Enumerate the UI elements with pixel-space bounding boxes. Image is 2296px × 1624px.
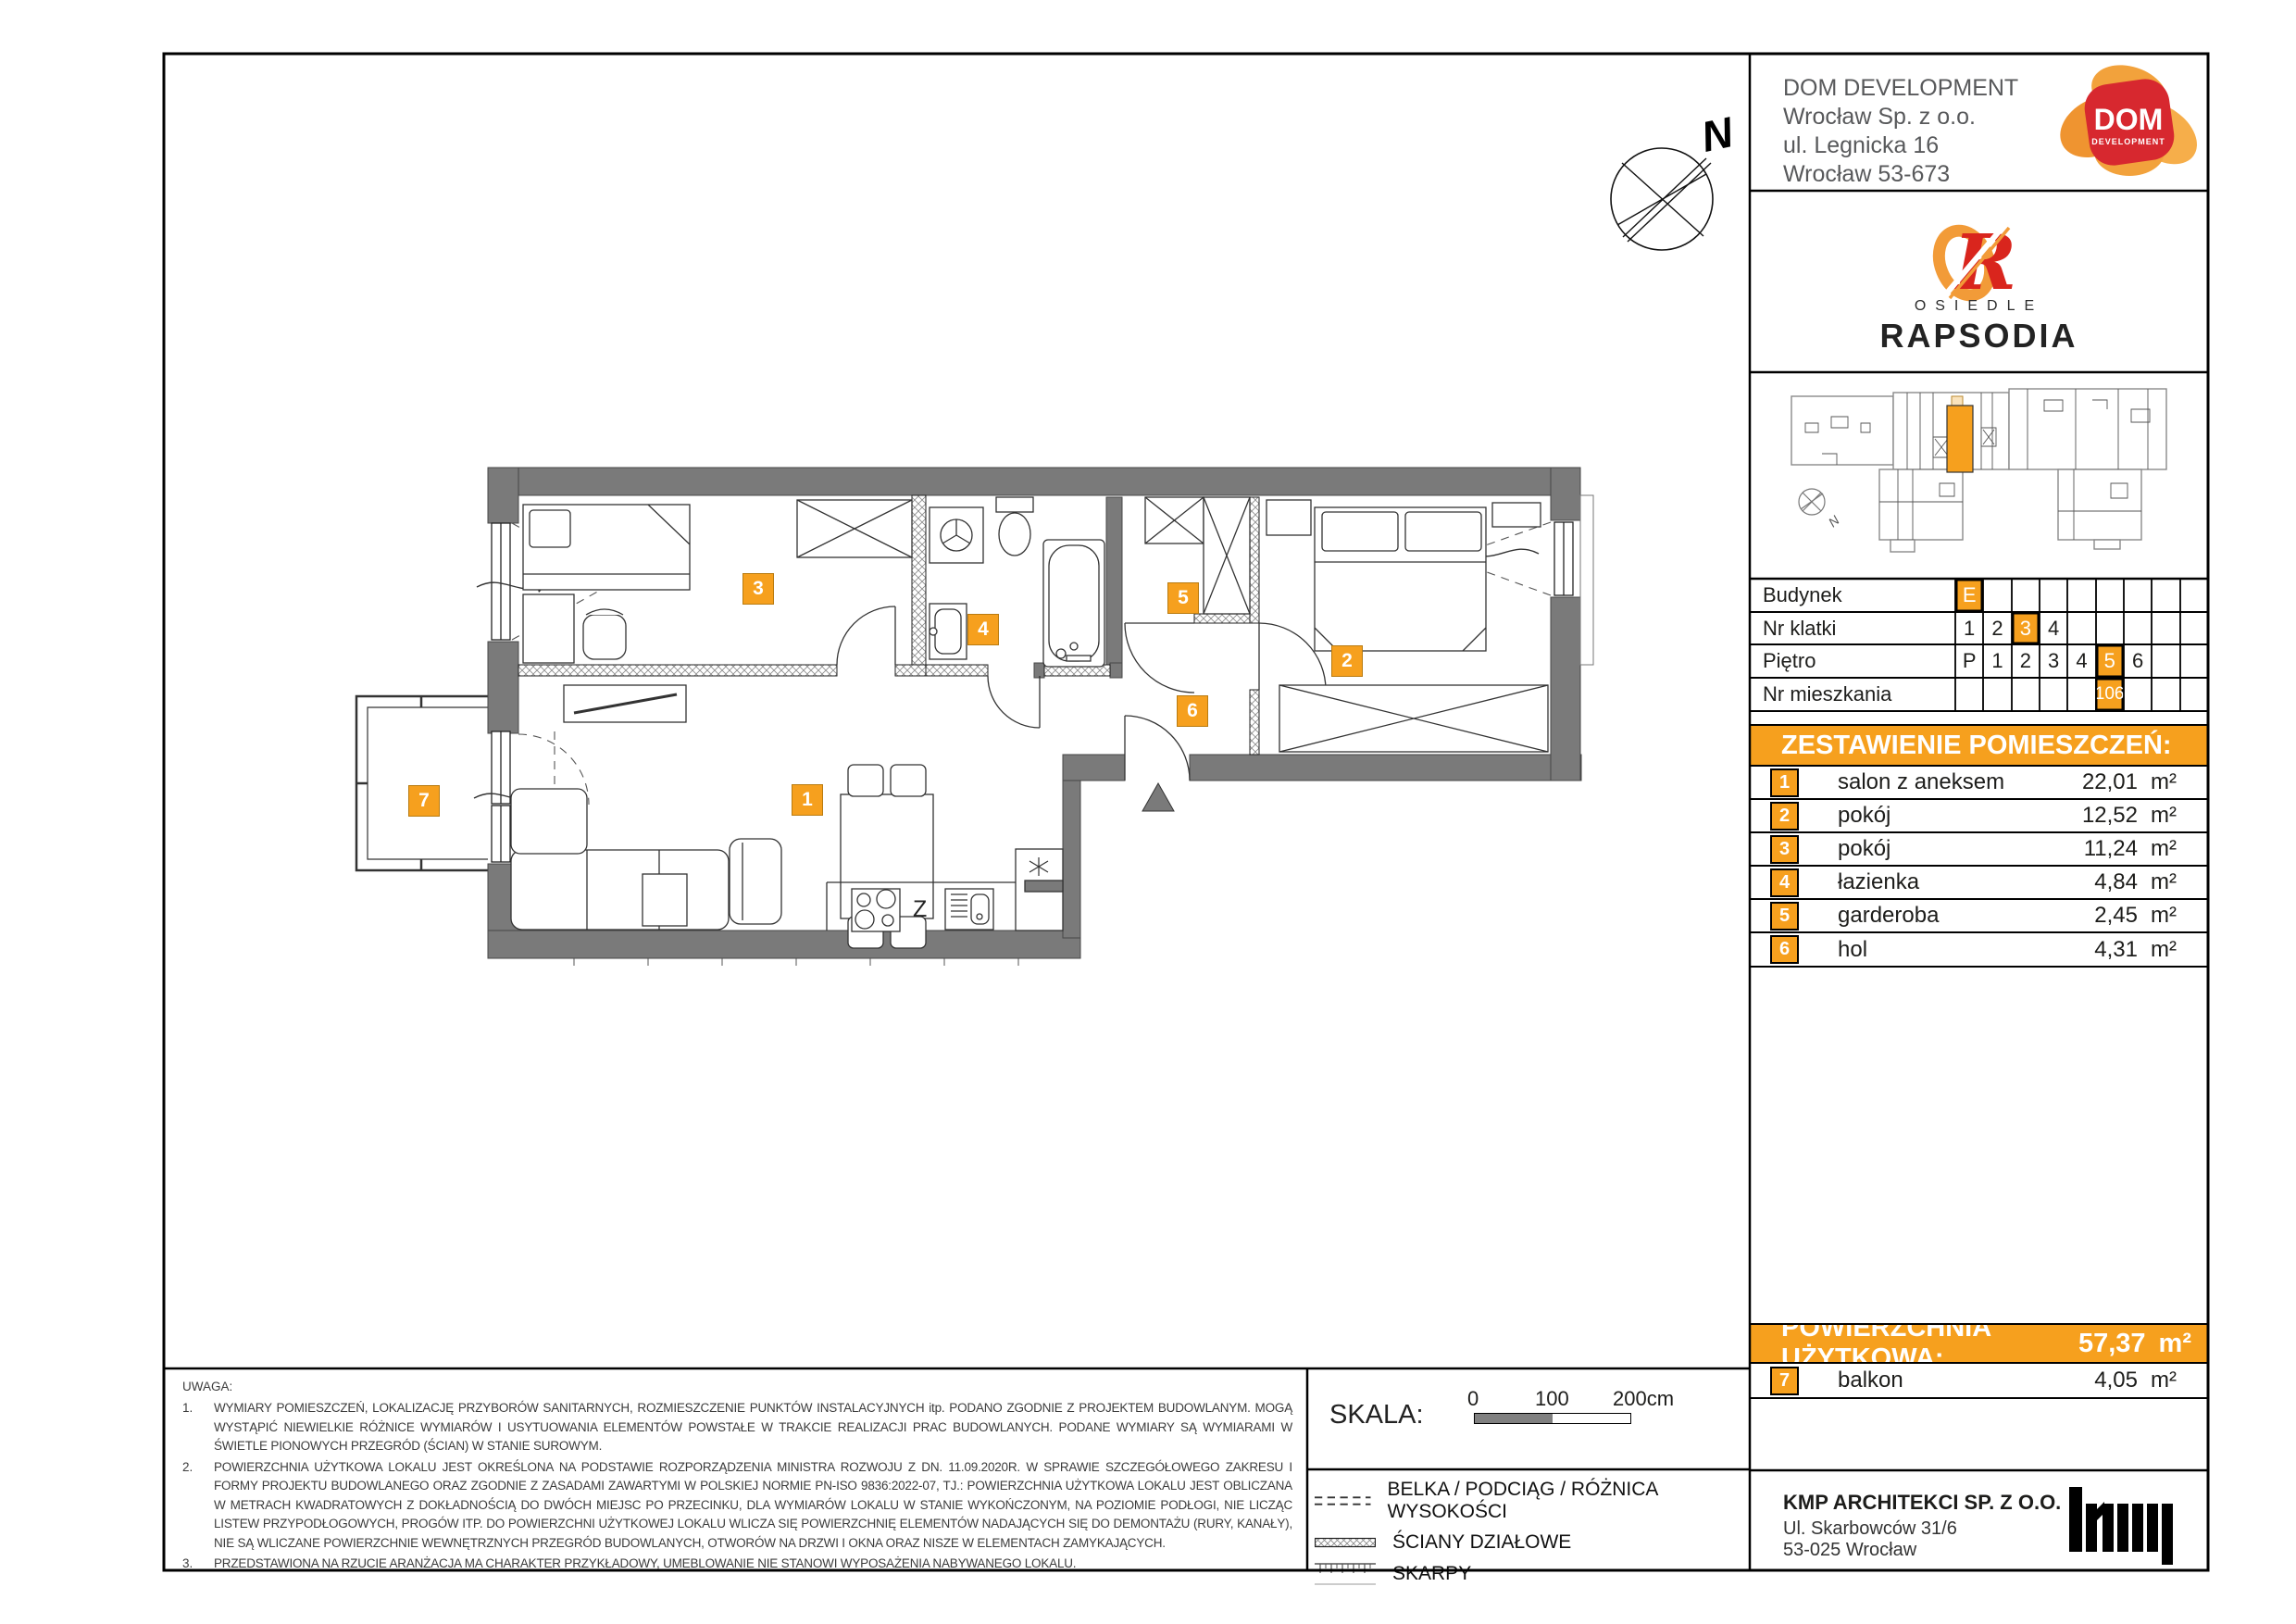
room-badge-1: 1 <box>792 784 823 816</box>
row-label: Nr klatki <box>1750 612 1955 644</box>
room-row-badge: 3 <box>1770 835 1799 864</box>
building-overview-panel: N <box>1750 372 2208 579</box>
rapsodia-logo-icon: R <box>1916 219 2046 302</box>
room-badge-2: 2 <box>1331 645 1363 677</box>
balcony-outline <box>356 696 488 870</box>
note-1: 1. WYMIARY POMIESZCZEŃ, LOKALIZACJĘ PRZY… <box>182 1399 1292 1456</box>
total-area-band: POWIERZCHNIA UŻYTKOWA: 57,37 m² <box>1750 1324 2208 1363</box>
legend-sciany: ŚCIANY DZIAŁOWE <box>1315 1531 1750 1554</box>
row-label: Budynek <box>1750 579 1955 612</box>
scale-tick-200: 200cm <box>1613 1387 1674 1411</box>
room-row-2: 2 pokój 12,52 m² <box>1750 799 2208 832</box>
highlighted-unit <box>1947 406 1973 472</box>
row-label: Piętro <box>1750 644 1955 678</box>
wall-outer-strip <box>1580 495 1593 665</box>
company-line3: ul. Legnicka 16 <box>1783 131 2018 160</box>
floorplan-sheet: { "company": { "name": "DOM DEVELOPMENT"… <box>0 0 2296 1624</box>
beam-symbol-icon <box>1315 1493 1371 1508</box>
room-row-badge: 6 <box>1770 935 1799 964</box>
cell-pietro-5: 5 <box>2096 644 2124 678</box>
slope-symbol-icon <box>1315 1562 1376 1586</box>
cell-klatka-3: 3 <box>2012 612 2040 644</box>
building-overview-map: N <box>1750 372 2208 579</box>
room-badge-7: 7 <box>408 785 440 817</box>
company-line2: Wrocław Sp. z o.o. <box>1783 103 2018 131</box>
estate-line2: RAPSODIA <box>1750 317 2208 356</box>
room-row-badge: 5 <box>1770 902 1799 931</box>
legend-skarpy: SKARPY <box>1315 1562 1750 1586</box>
room-badge-3: 3 <box>742 573 774 605</box>
cell-budynek-e: E <box>1955 579 1983 612</box>
table-row-pietro: Piętro P 1 2 3 4 5 6 <box>1750 644 2208 678</box>
estate-line1: OSIEDLE <box>1750 298 2208 315</box>
dom-development-logo-icon: DOM DEVELOPMENT <box>2055 57 2203 187</box>
kmp-logo-icon <box>2065 1478 2180 1566</box>
company-panel: DOM DEVELOPMENT Wrocław Sp. z o.o. ul. L… <box>1750 54 2208 191</box>
svg-text:DEVELOPMENT: DEVELOPMENT <box>2091 137 2165 146</box>
company-line4: Wrocław 53-673 <box>1783 160 2018 189</box>
room-badge-4: 4 <box>967 614 999 645</box>
mini-compass-icon <box>1799 489 1825 515</box>
legend-belka: BELKA / PODCIĄG / RÓŻNICA WYSOKOŚCI <box>1315 1479 1750 1523</box>
room-badge-6: 6 <box>1177 695 1208 727</box>
room-row-badge: 7 <box>1770 1367 1799 1395</box>
room-row-1: 1 salon z aneksem 22,01 m² <box>1750 766 2208 799</box>
room-row-badge: 2 <box>1770 802 1799 831</box>
notes-panel: UWAGA: 1. WYMIARY POMIESZCZEŃ, LOKALIZAC… <box>164 1368 1307 1570</box>
room-row-3: 3 pokój 11,24 m² <box>1750 832 2208 866</box>
table-row-budynek: Budynek E <box>1750 579 2208 612</box>
total-value: 57,37 <box>2078 1329 2146 1359</box>
legend-panel: BELKA / PODCIĄG / RÓŻNICA WYSOKOŚCI ŚCIA… <box>1307 1469 1750 1570</box>
architect-line2: Ul. Skarbowców 31/6 <box>1783 1518 2061 1540</box>
scale-bar <box>1474 1413 1631 1424</box>
room-row-balkon: 7 balkon 4,05 m² <box>1750 1363 2208 1398</box>
estate-panel: R OSIEDLE RAPSODIA <box>1750 191 2208 372</box>
note-2: 2. POWIERZCHNIA UŻYTKOWA LOKALU JEST OKR… <box>182 1458 1292 1554</box>
table-row-mieszkanie: Nr mieszkania 106 <box>1750 678 2208 711</box>
cell-mieszkanie-106: 106 <box>2095 678 2125 711</box>
room-row-5: 5 garderoba 2,45 m² <box>1750 899 2208 932</box>
svg-text:DOM: DOM <box>2094 103 2164 136</box>
rooms-header-label: ZESTAWIENIE POMIESZCZEŃ: <box>1781 731 2172 761</box>
total-unit: m² <box>2159 1329 2191 1359</box>
company-name: DOM DEVELOPMENT <box>1783 74 2018 103</box>
mini-compass-north-label: N <box>1826 512 1843 530</box>
row-label: Nr mieszkania <box>1750 678 1955 711</box>
scale-tick-100: 100 <box>1535 1387 1569 1411</box>
furniture <box>511 497 1548 948</box>
architect-line3: 53-025 Wrocław <box>1783 1540 2061 1561</box>
rooms-header-band: ZESTAWIENIE POMIESZCZEŃ: <box>1750 725 2208 766</box>
compass-icon <box>1611 148 1713 250</box>
notes-title: UWAGA: <box>182 1380 1292 1393</box>
partition-symbol-icon <box>1315 1537 1376 1548</box>
room-row-badge: 1 <box>1770 768 1799 797</box>
room-row-badge: 4 <box>1770 868 1799 897</box>
entrance-marker <box>1142 783 1174 811</box>
kitchen-z-label: Z <box>913 896 927 923</box>
architect-panel: KMP ARCHITEKCI SP. Z O.O. Ul. Skarbowców… <box>1750 1470 2208 1570</box>
scale-tick-0: 0 <box>1467 1387 1479 1411</box>
room-row-4: 4 łazienka 4,84 m² <box>1750 866 2208 899</box>
room-row-6: 6 hol 4,31 m² <box>1750 932 2208 967</box>
floor-plan-drawing <box>164 54 1750 1368</box>
skarpy-ticks <box>574 958 1018 966</box>
scale-label: SKALA: <box>1329 1400 1424 1430</box>
architect-name: KMP ARCHITEKCI SP. Z O.O. <box>1783 1491 2061 1515</box>
table-row-klatka: Nr klatki 1 2 3 4 <box>1750 612 2208 644</box>
room-badge-5: 5 <box>1167 582 1199 614</box>
note-3: 3. PRZEDSTAWIONA NA RZUCIE ARANŻACJA MA … <box>182 1555 1292 1574</box>
scale-panel: SKALA: 0 100 200cm <box>1307 1368 1750 1469</box>
